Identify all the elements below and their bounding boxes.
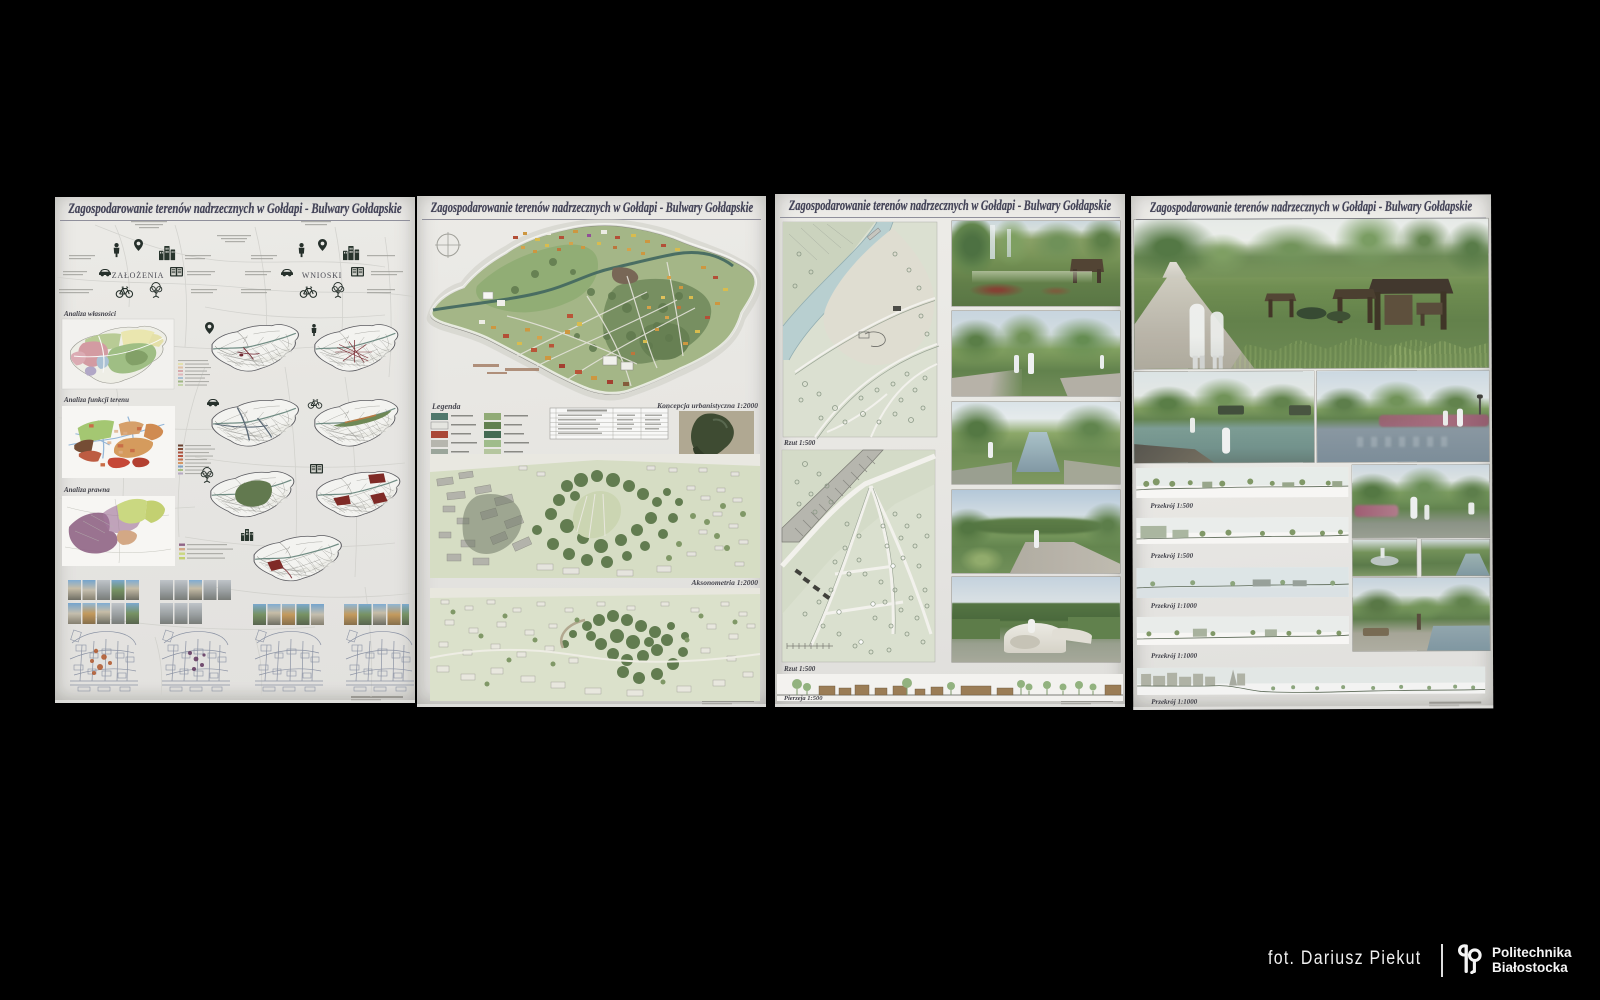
svg-text:WNIOSKI: WNIOSKI <box>302 271 342 280</box>
svg-text:Rzut 1:500: Rzut 1:500 <box>783 665 816 673</box>
svg-text:Rzut 1:500: Rzut 1:500 <box>783 439 816 447</box>
svg-text:Pierzeja 1:500: Pierzeja 1:500 <box>784 695 823 702</box>
svg-text:Analiza prawna: Analiza prawna <box>63 486 110 494</box>
svg-text:Przekrój 1:1000: Przekrój 1:1000 <box>1151 602 1198 610</box>
svg-text:Przekrój 1:1000: Przekrój 1:1000 <box>1151 698 1198 706</box>
svg-text:Aksonometria 1:2000: Aksonometria 1:2000 <box>691 578 759 587</box>
svg-text:Analiza własności: Analiza własności <box>63 310 116 318</box>
svg-text:Przekrój 1:1000: Przekrój 1:1000 <box>1151 652 1198 660</box>
svg-text:Przekrój 1:500: Przekrój 1:500 <box>1150 502 1193 510</box>
svg-text:Analiza funkcji terenu: Analiza funkcji terenu <box>63 396 129 404</box>
svg-text:Koncepcja urbanistyczna 1:2000: Koncepcja urbanistyczna 1:2000 <box>656 401 758 410</box>
svg-text:ZAŁOŻENIA: ZAŁOŻENIA <box>112 271 165 280</box>
svg-text:Legenda: Legenda <box>431 402 460 411</box>
svg-text:Przekrój 1:500: Przekrój 1:500 <box>1151 552 1194 560</box>
